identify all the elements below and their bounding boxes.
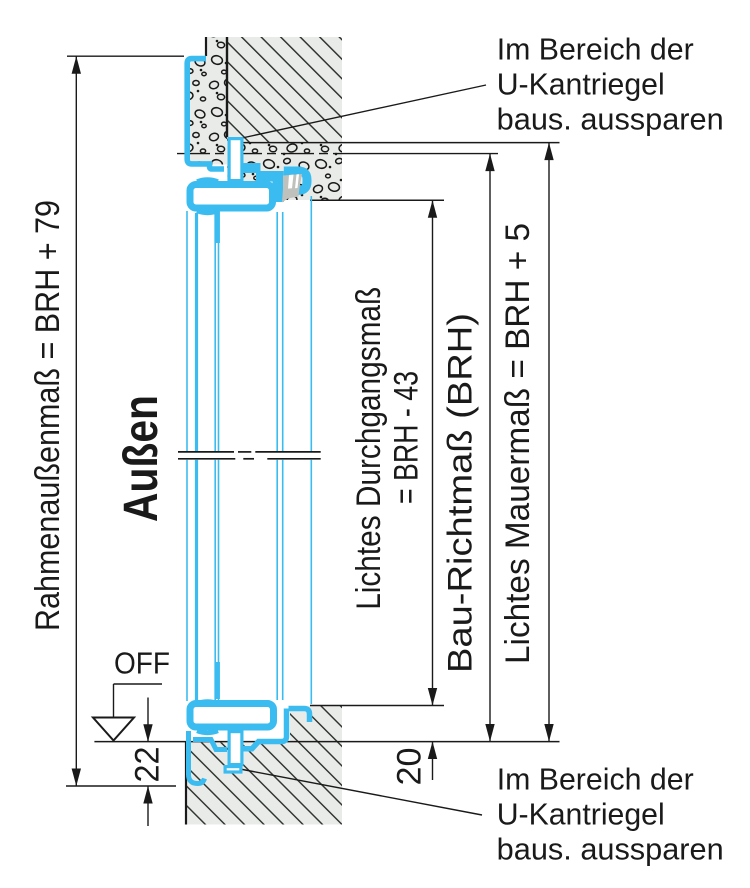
svg-text:U-Kantriegel: U-Kantriegel	[497, 67, 665, 101]
svg-text:baus. aussparen: baus. aussparen	[497, 832, 724, 866]
svg-text:= BRH - 43: = BRH - 43	[388, 371, 426, 504]
svg-text:baus. aussparen: baus. aussparen	[497, 102, 724, 136]
svg-text:Außen: Außen	[115, 395, 168, 522]
svg-text:OFF: OFF	[114, 647, 170, 681]
svg-text:Rahmenaußenmaß = BRH + 79: Rahmenaußenmaß = BRH + 79	[29, 200, 67, 631]
svg-text:22: 22	[129, 747, 167, 783]
svg-text:Lichtes Mauermaß = BRH + 5: Lichtes Mauermaß = BRH + 5	[499, 223, 537, 664]
svg-text:20: 20	[391, 748, 429, 786]
svg-text:U-Kantriegel: U-Kantriegel	[497, 797, 665, 831]
svg-text:Im Bereich der: Im Bereich der	[497, 32, 694, 66]
svg-text:Im Bereich der: Im Bereich der	[497, 762, 694, 796]
svg-text:Lichtes Durchgangsmaß: Lichtes Durchgangsmaß	[350, 287, 388, 610]
svg-text:Bau-Richtmaß (BRH): Bau-Richtmaß (BRH)	[442, 313, 480, 673]
